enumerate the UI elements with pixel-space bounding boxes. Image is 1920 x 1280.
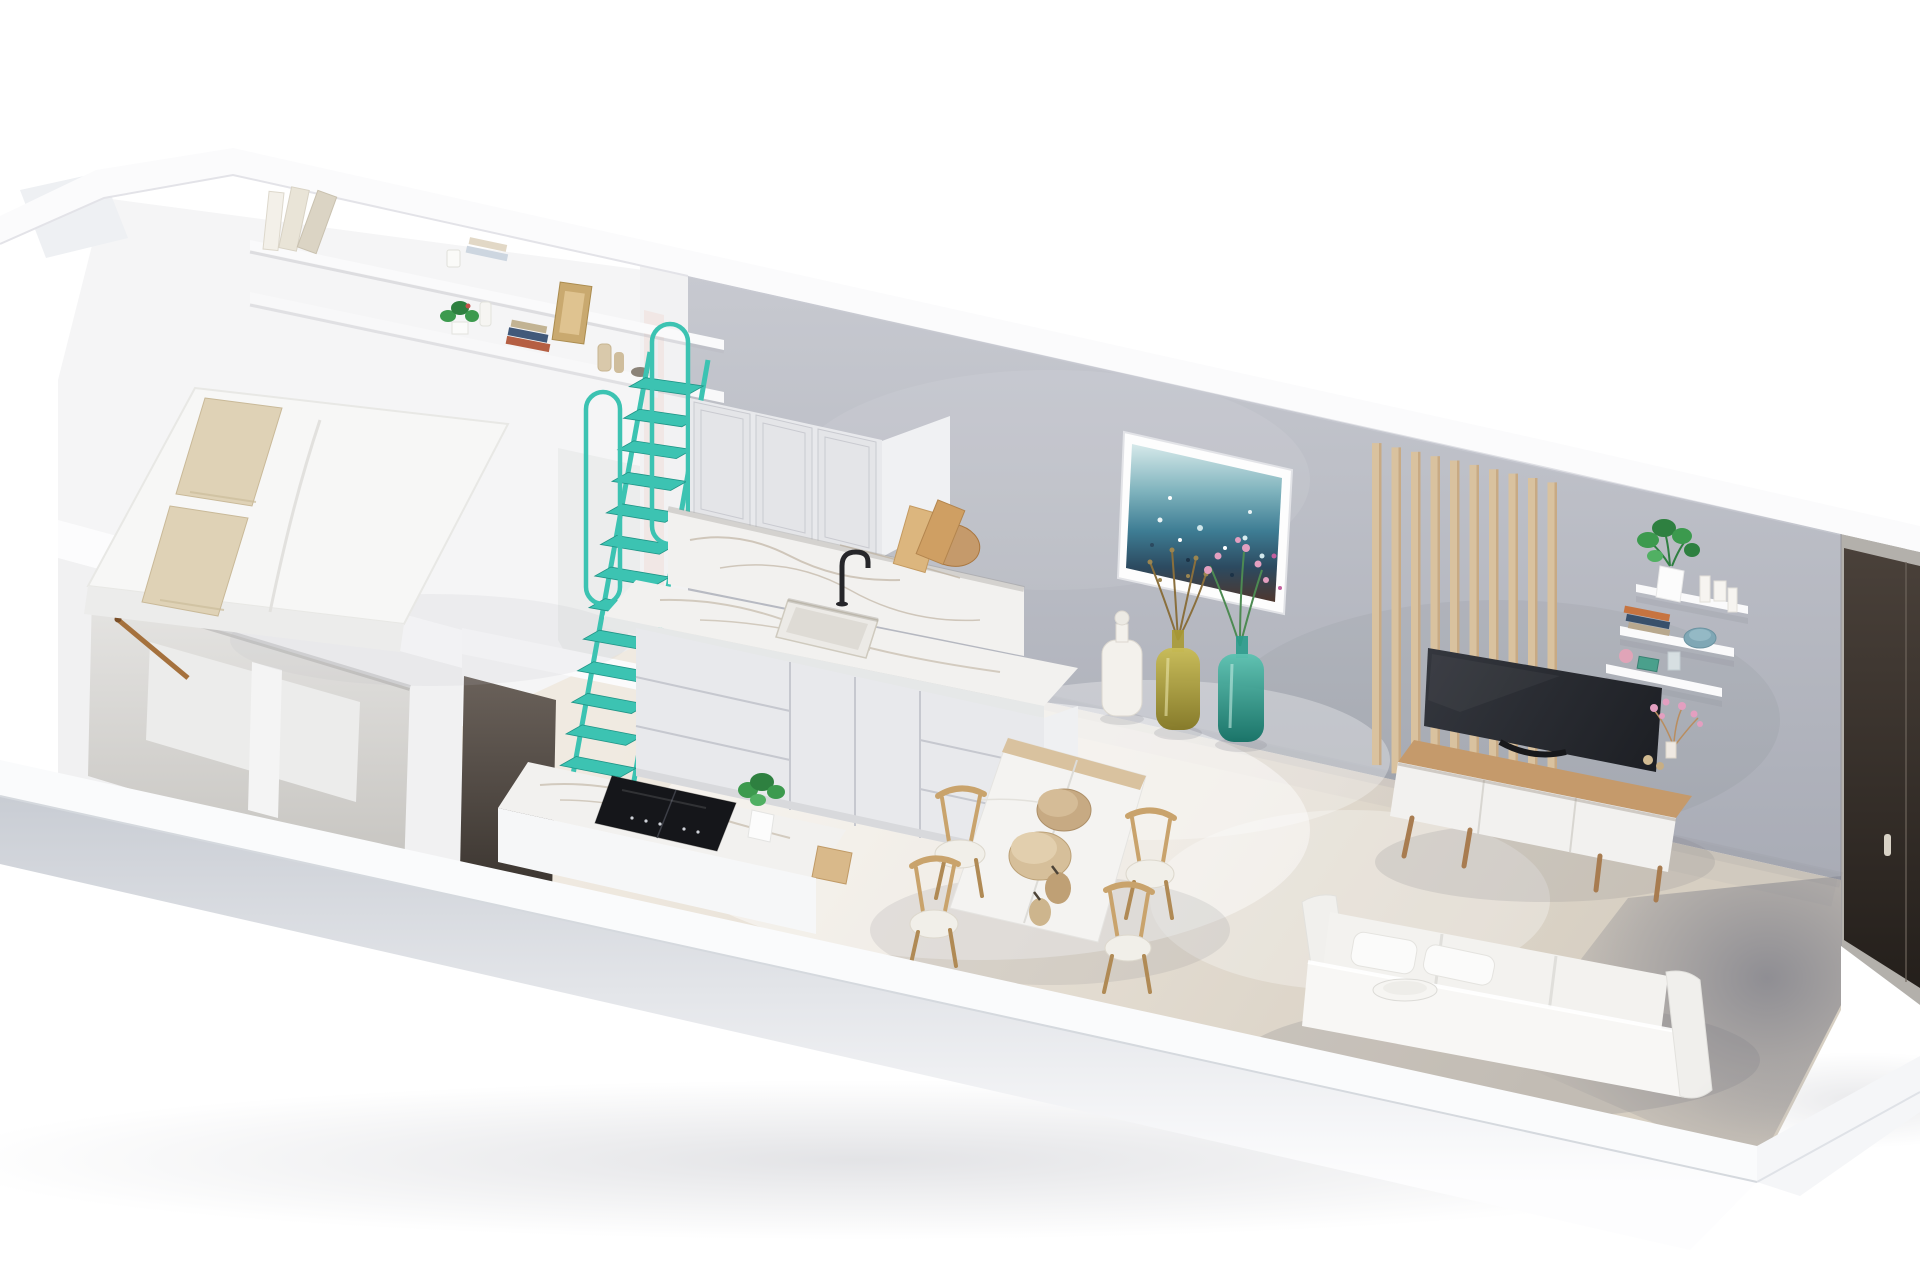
entry-door [1844,548,1920,988]
wall-slat-shade [1438,456,1441,790]
wall-slat-shade [1418,452,1421,782]
wall-slat-shade [1379,443,1382,765]
entry-wall [1841,534,1920,1005]
apartment-3d-render: Isometric cutaway 3D render of a long na… [0,0,1920,1280]
render-canvas: Isometric cutaway 3D render of a long na… [0,0,1920,1280]
island-stool [812,846,852,884]
door-handle-icon [1884,834,1891,856]
wall-slat-shade [1457,461,1460,799]
wall-slat-shade [1399,447,1402,773]
